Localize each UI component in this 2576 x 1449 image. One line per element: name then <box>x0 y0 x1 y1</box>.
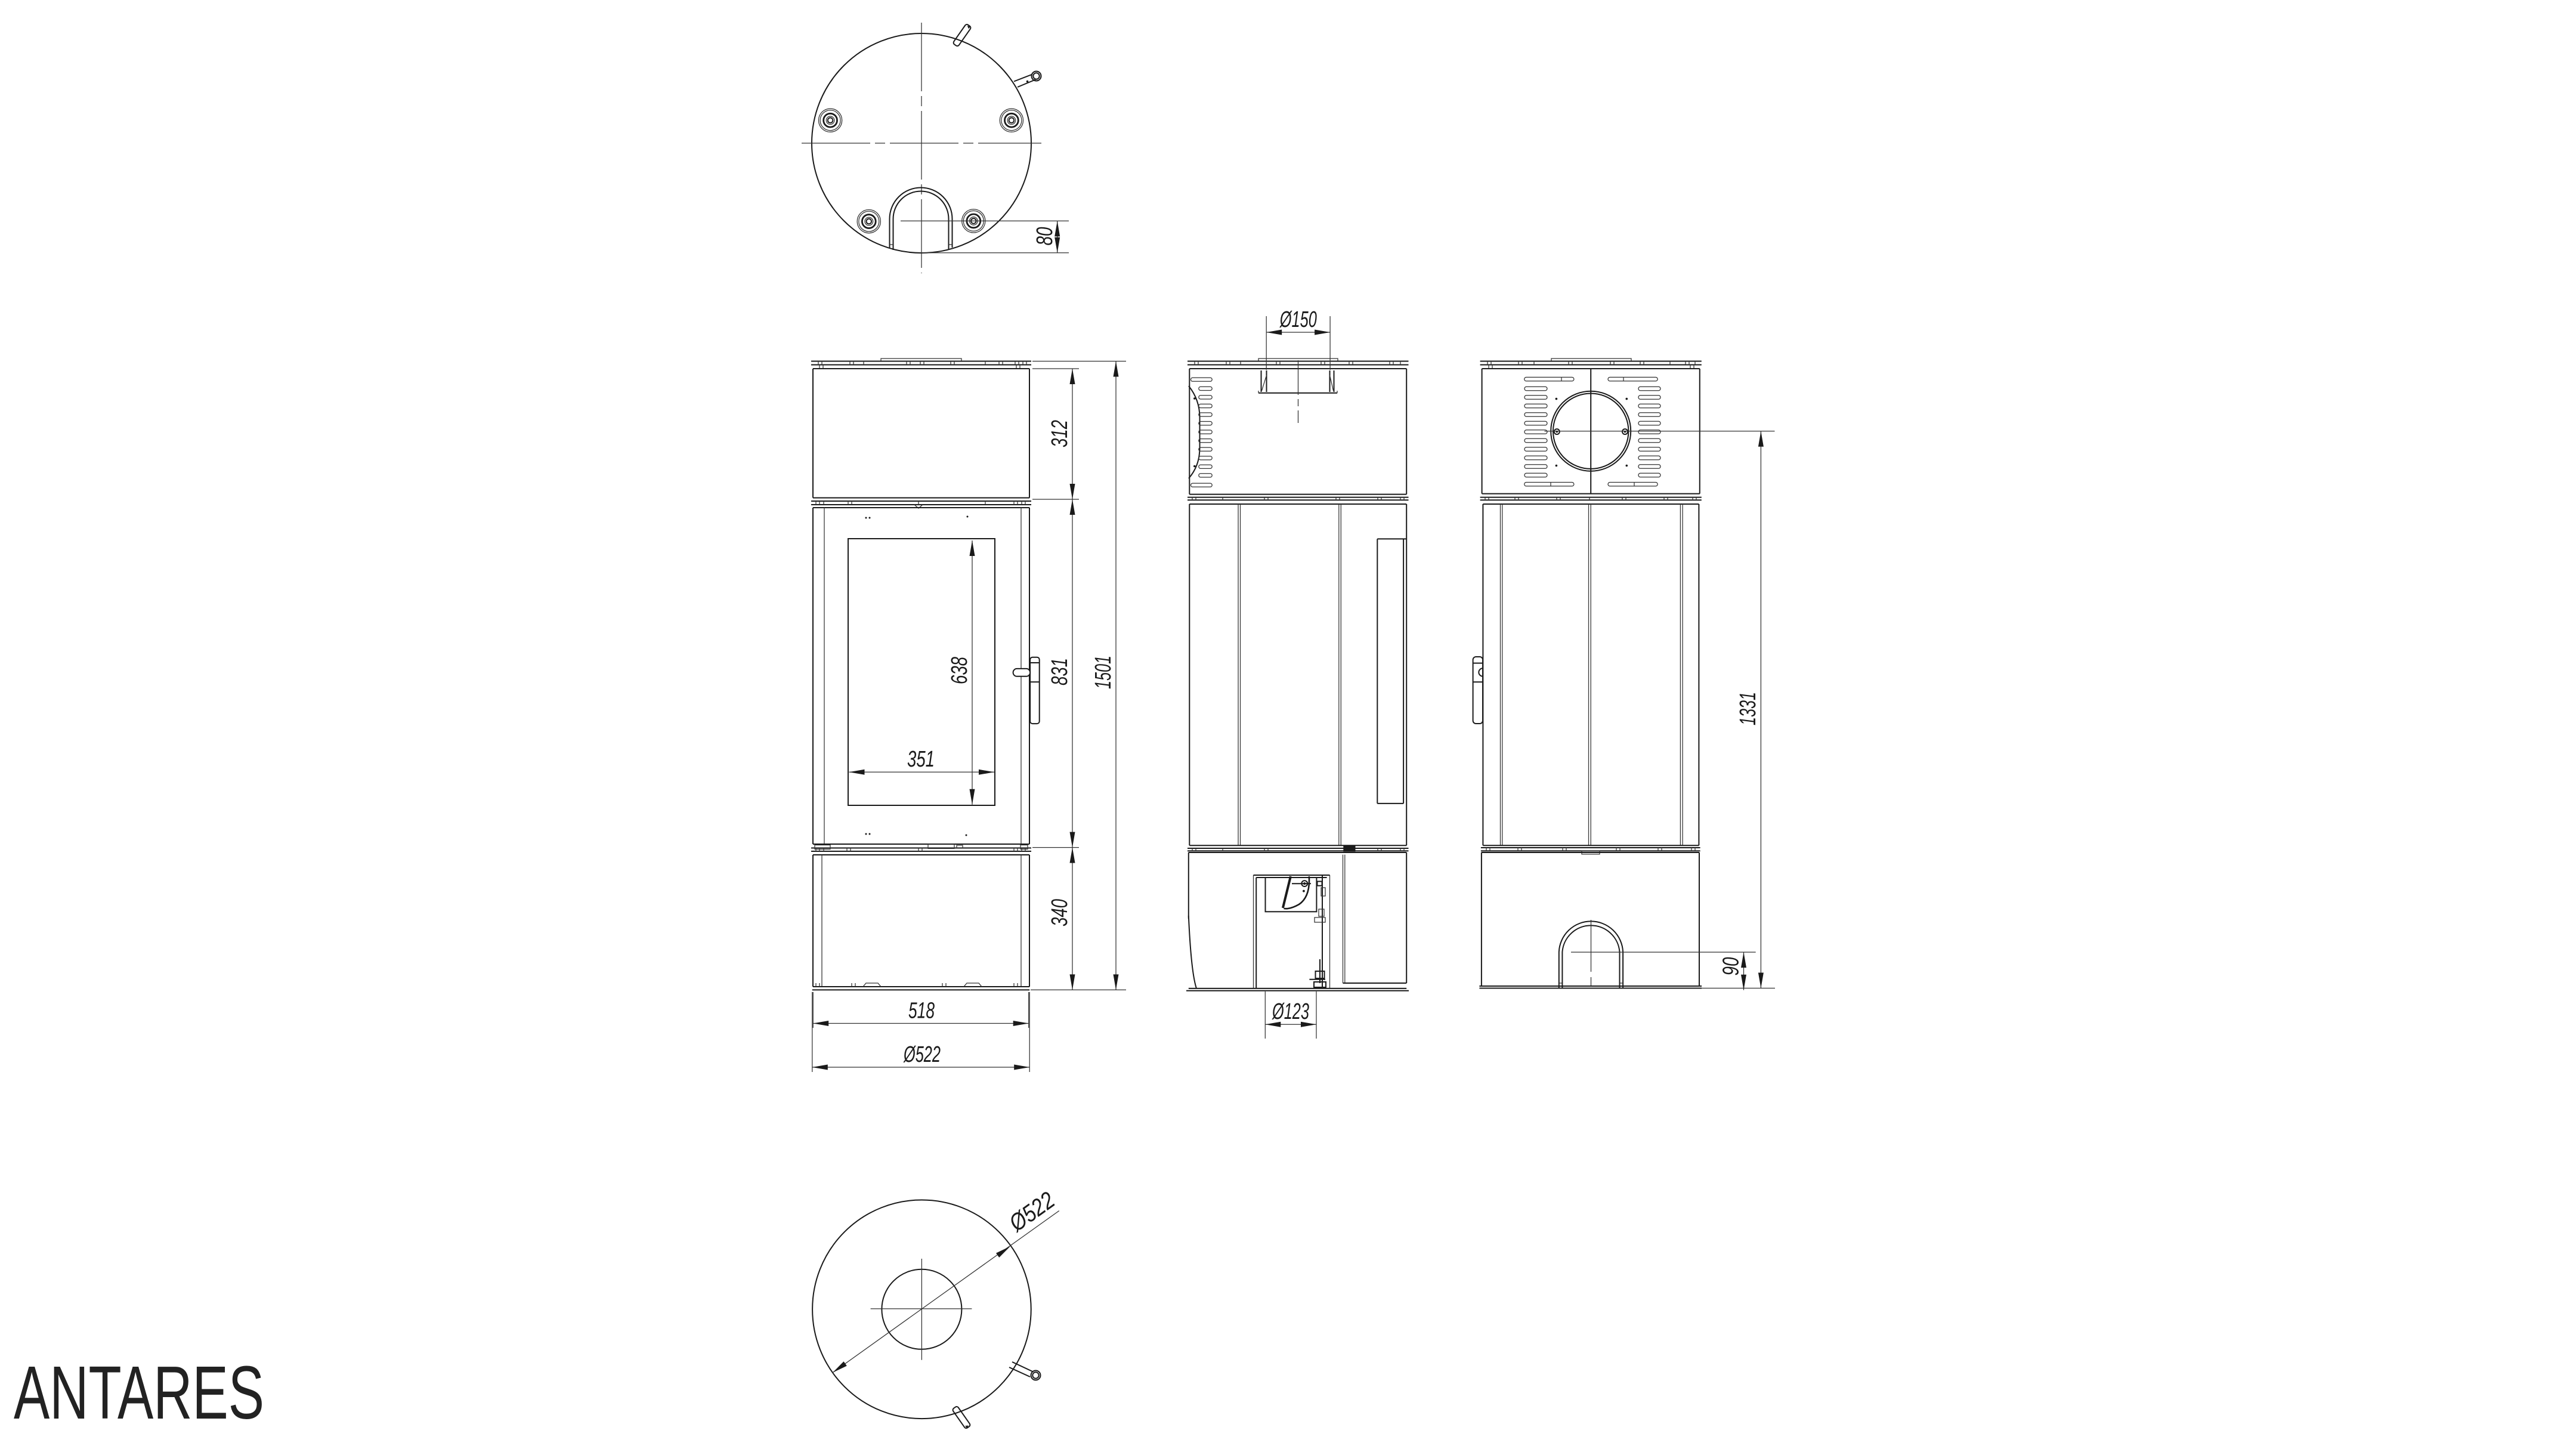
svg-text:312: 312 <box>1047 420 1072 447</box>
svg-text:90: 90 <box>1719 957 1744 976</box>
svg-text:638: 638 <box>947 657 972 684</box>
svg-text:831: 831 <box>1047 658 1072 685</box>
svg-text:Ø522: Ø522 <box>903 1042 941 1067</box>
svg-text:1501: 1501 <box>1091 656 1116 689</box>
svg-text:Ø150: Ø150 <box>1279 307 1316 332</box>
svg-text:1331: 1331 <box>1736 692 1761 725</box>
svg-text:Ø123: Ø123 <box>1272 999 1309 1024</box>
svg-text:340: 340 <box>1047 899 1072 926</box>
svg-text:518: 518 <box>908 999 935 1024</box>
svg-text:ANTARES: ANTARES <box>14 1351 264 1435</box>
svg-text:351: 351 <box>907 747 935 772</box>
svg-text:80: 80 <box>1032 227 1057 246</box>
